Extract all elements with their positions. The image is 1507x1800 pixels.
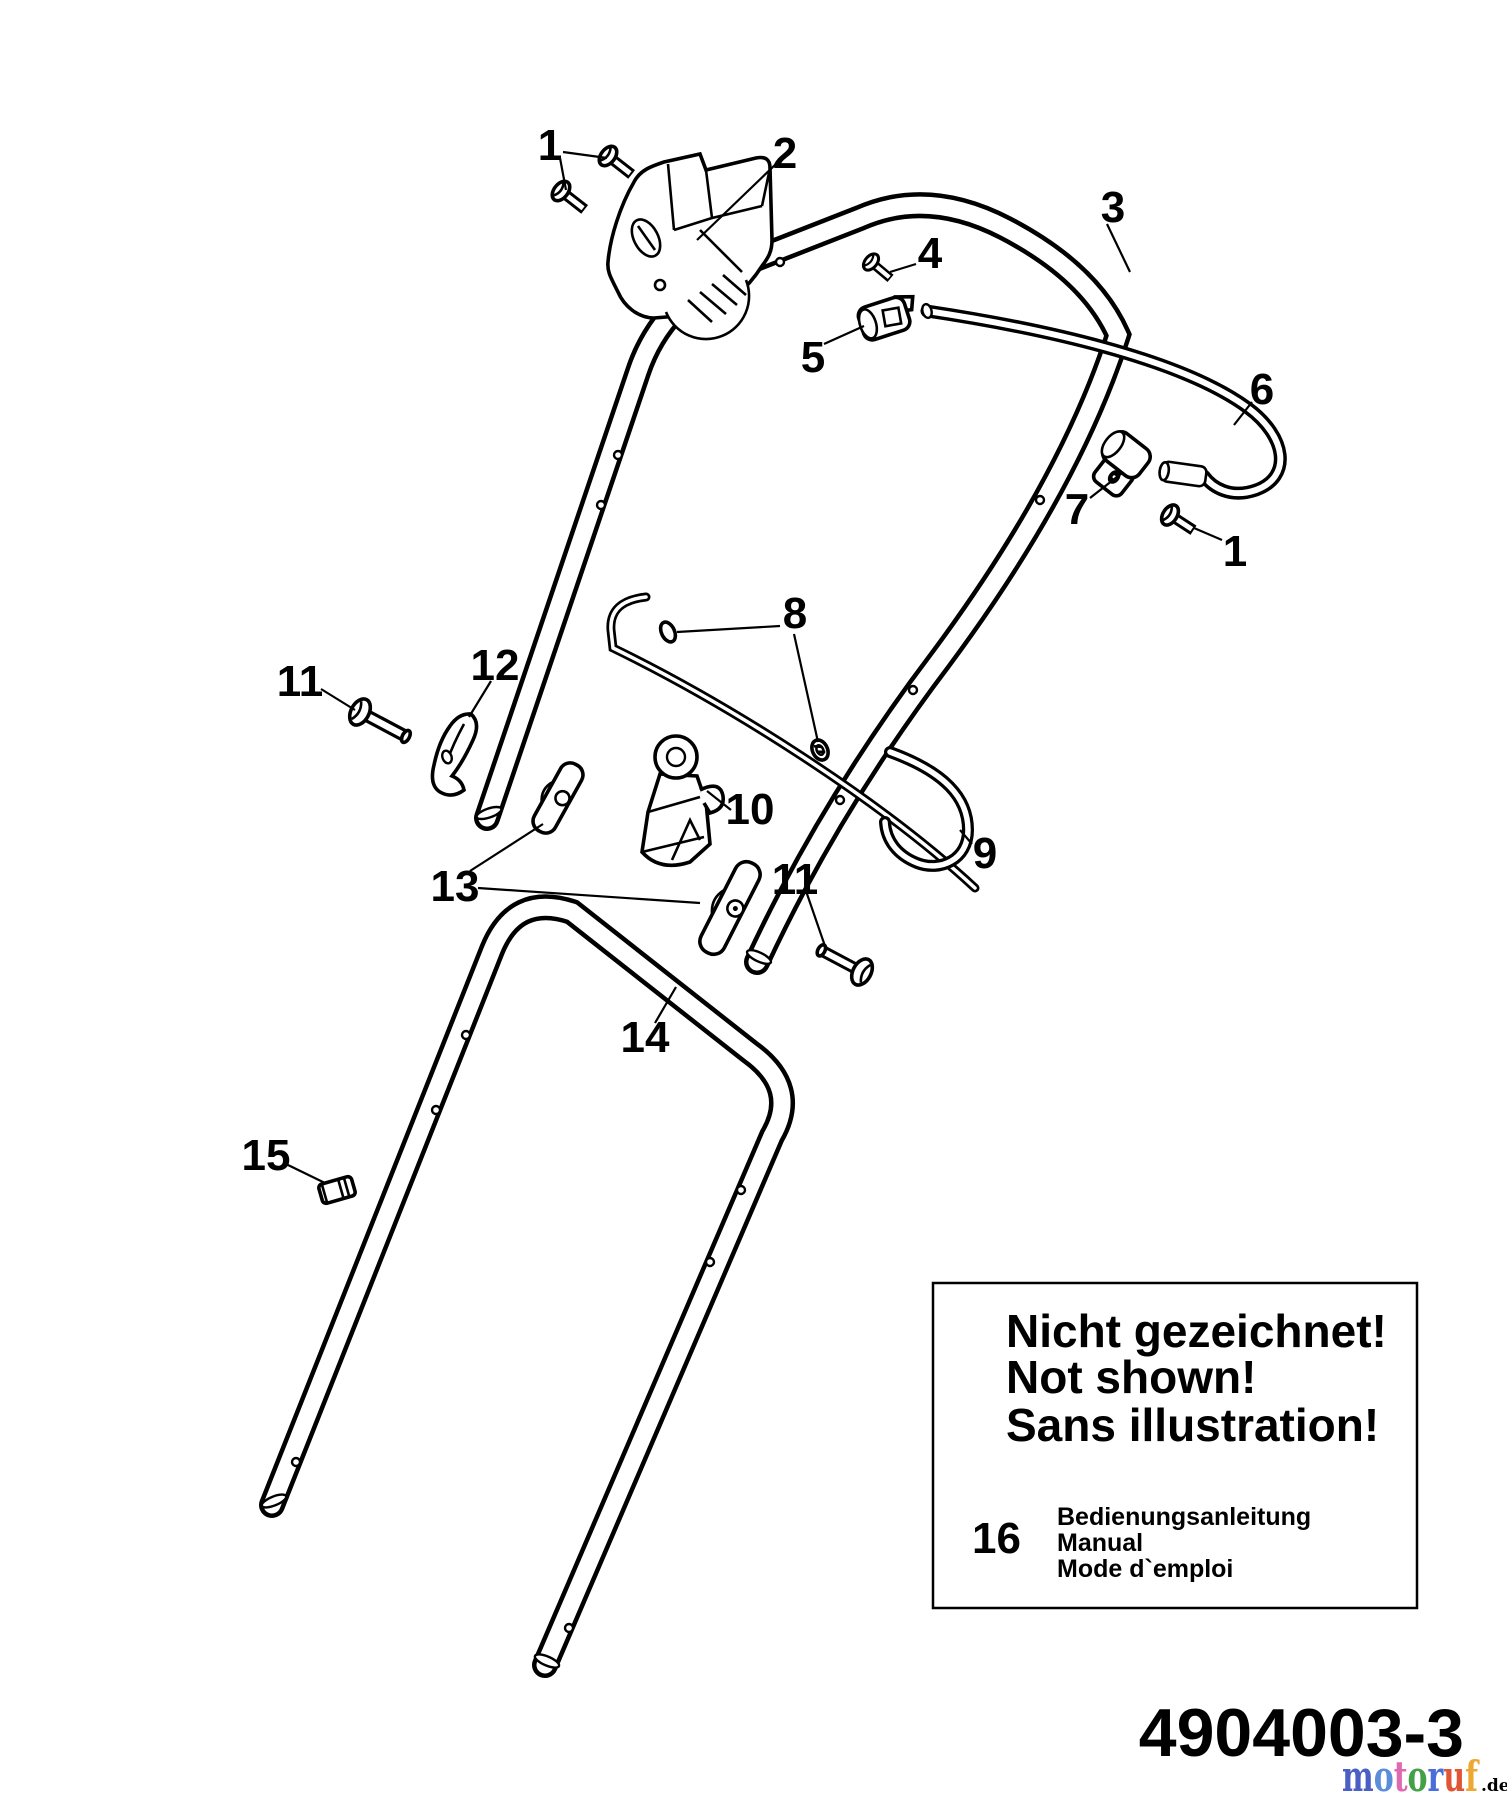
- motoruf-watermark: motoruf .de: [1342, 1752, 1507, 1800]
- screw-right: [1158, 502, 1199, 540]
- callout-2: 2: [773, 129, 797, 178]
- hook-lever: [432, 714, 476, 795]
- not-shown-line-de: Nicht gezeichnet!: [1006, 1305, 1387, 1357]
- upper-handle-tube: [475, 205, 1118, 966]
- not-shown-item-number: 16: [972, 1514, 1021, 1563]
- not-shown-line-fr: Sans illustration!: [1006, 1399, 1379, 1451]
- callout-8: 8: [783, 589, 807, 638]
- lower-handle-tube: [260, 907, 782, 1670]
- callout-9: 9: [973, 829, 997, 878]
- motoruf-logo-letters: motoruf: [1342, 1752, 1480, 1800]
- sleeve-part: [318, 1176, 356, 1205]
- cable-ferrule: [1158, 461, 1207, 487]
- parts-diagram-page: 1 2 3 4 5 6 7 1 8 9 10 11 12 13 14 11 15…: [0, 0, 1507, 1800]
- callout-11-left: 11: [277, 657, 324, 706]
- exploded-parts-diagram: 1 2 3 4 5 6 7 1 8 9 10 11 12 13 14 11 15…: [0, 0, 1507, 1800]
- rod-ring-a: [658, 620, 679, 645]
- callout-4: 4: [918, 229, 943, 278]
- callout-15: 15: [242, 1131, 291, 1180]
- not-shown-line-en: Not shown!: [1006, 1351, 1256, 1403]
- bolt-left: [345, 695, 415, 750]
- tube-holes: [292, 258, 1044, 1632]
- switch-housing: [608, 154, 772, 339]
- cable-clamp-lower: [1082, 426, 1154, 500]
- motoruf-logo-suffix: .de: [1481, 1776, 1507, 1796]
- not-shown-item-fr: Mode d`emploi: [1057, 1555, 1233, 1583]
- not-shown-item-de: Bedienungsanleitung: [1057, 1503, 1311, 1531]
- callout-5: 5: [801, 333, 825, 382]
- callout-12: 12: [471, 641, 520, 690]
- wing-knob-a: [526, 757, 587, 837]
- screw-top-b: [549, 178, 592, 218]
- cable-clamp-upper: [855, 292, 922, 343]
- callout-1-top: 1: [538, 121, 562, 170]
- cable-guide-bracket: [642, 736, 723, 865]
- callout-labels: 1 2 3 4 5 6 7 1 8 9 10 11 12 13 14 11 15: [242, 121, 1275, 1180]
- callout-6: 6: [1250, 365, 1274, 414]
- callout-1-right: 1: [1223, 527, 1247, 576]
- screw-top-a: [596, 143, 639, 183]
- bolt-right: [812, 936, 877, 988]
- callout-7: 7: [1065, 485, 1089, 534]
- callout-3: 3: [1101, 183, 1125, 232]
- callout-11-right: 11: [772, 855, 819, 904]
- not-shown-box: Nicht gezeichnet! Not shown! Sans illust…: [933, 1283, 1417, 1608]
- not-shown-item-en: Manual: [1057, 1529, 1143, 1557]
- callout-10: 10: [726, 785, 775, 834]
- clamp-bolt-4: [860, 251, 896, 286]
- callout-14: 14: [621, 1013, 670, 1062]
- callout-13: 13: [431, 862, 480, 911]
